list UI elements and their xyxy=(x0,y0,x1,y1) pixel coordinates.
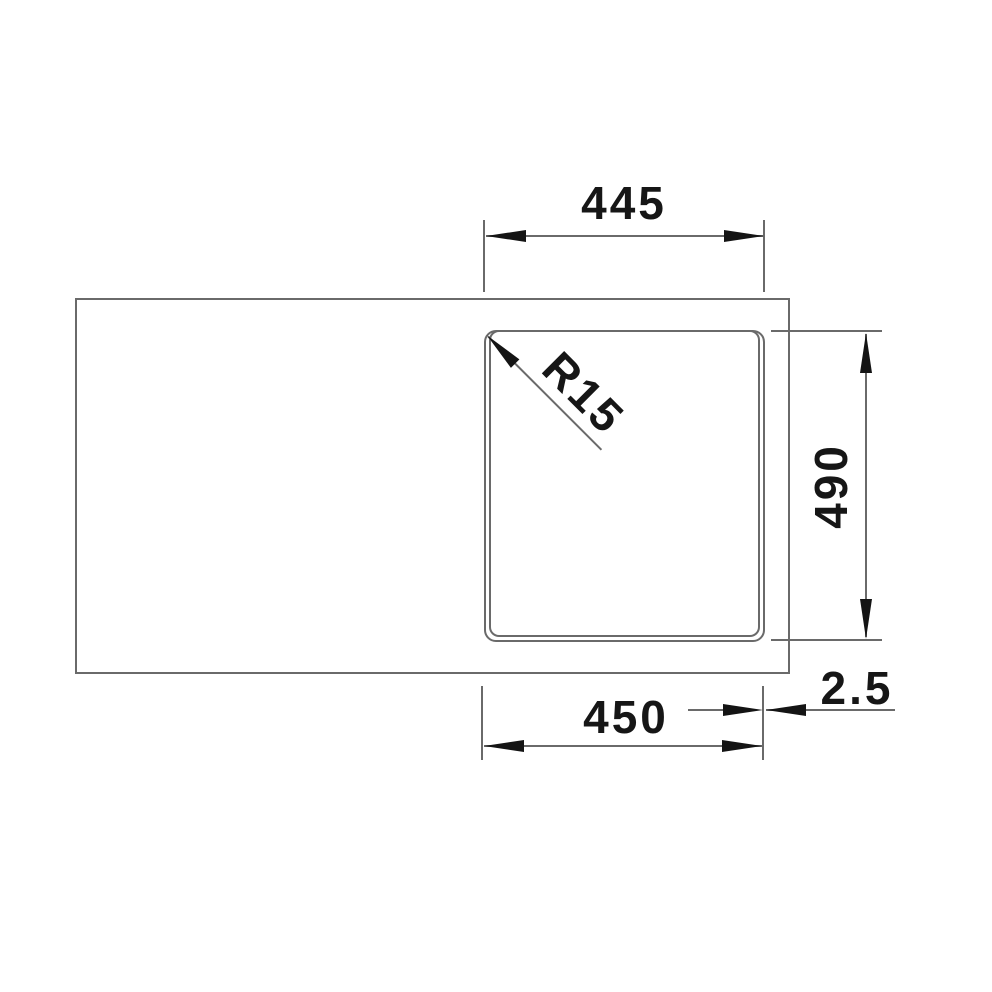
dim-450-label: 450 xyxy=(583,694,669,740)
dim-490-dimension-line xyxy=(865,334,867,637)
dim-2-5-label: 2.5 xyxy=(821,665,894,711)
dim-450-extension-line-right xyxy=(762,686,764,760)
dim-450-arrowhead-left-icon xyxy=(484,740,524,752)
dim-490-arrowhead-up-icon xyxy=(860,333,872,373)
dim-490-arrowhead-down-icon xyxy=(860,599,872,639)
dim-445-arrowhead-left-icon xyxy=(486,230,526,242)
dim-445-extension-line-left xyxy=(483,220,485,292)
dim-445-arrowhead-right-icon xyxy=(724,230,764,242)
dim-450-extension-line-left xyxy=(481,686,483,760)
dim-450-dimension-line xyxy=(484,745,762,747)
dim-490-extension-line-top xyxy=(771,330,882,332)
drawing-canvas: 445 490 450 2.5 R15 xyxy=(0,0,992,992)
dim-450-arrowhead-right-icon xyxy=(722,740,762,752)
dim-445-label: 445 xyxy=(581,180,667,226)
dim-2-5-line-left xyxy=(688,709,724,711)
dim-490-label: 490 xyxy=(808,443,854,529)
dim-490-extension-line-bottom xyxy=(771,639,882,641)
dim-2-5-arrowhead-left-icon xyxy=(766,704,806,716)
dim-445-dimension-line xyxy=(486,235,764,237)
dim-2-5-arrowhead-right-icon xyxy=(723,704,763,716)
